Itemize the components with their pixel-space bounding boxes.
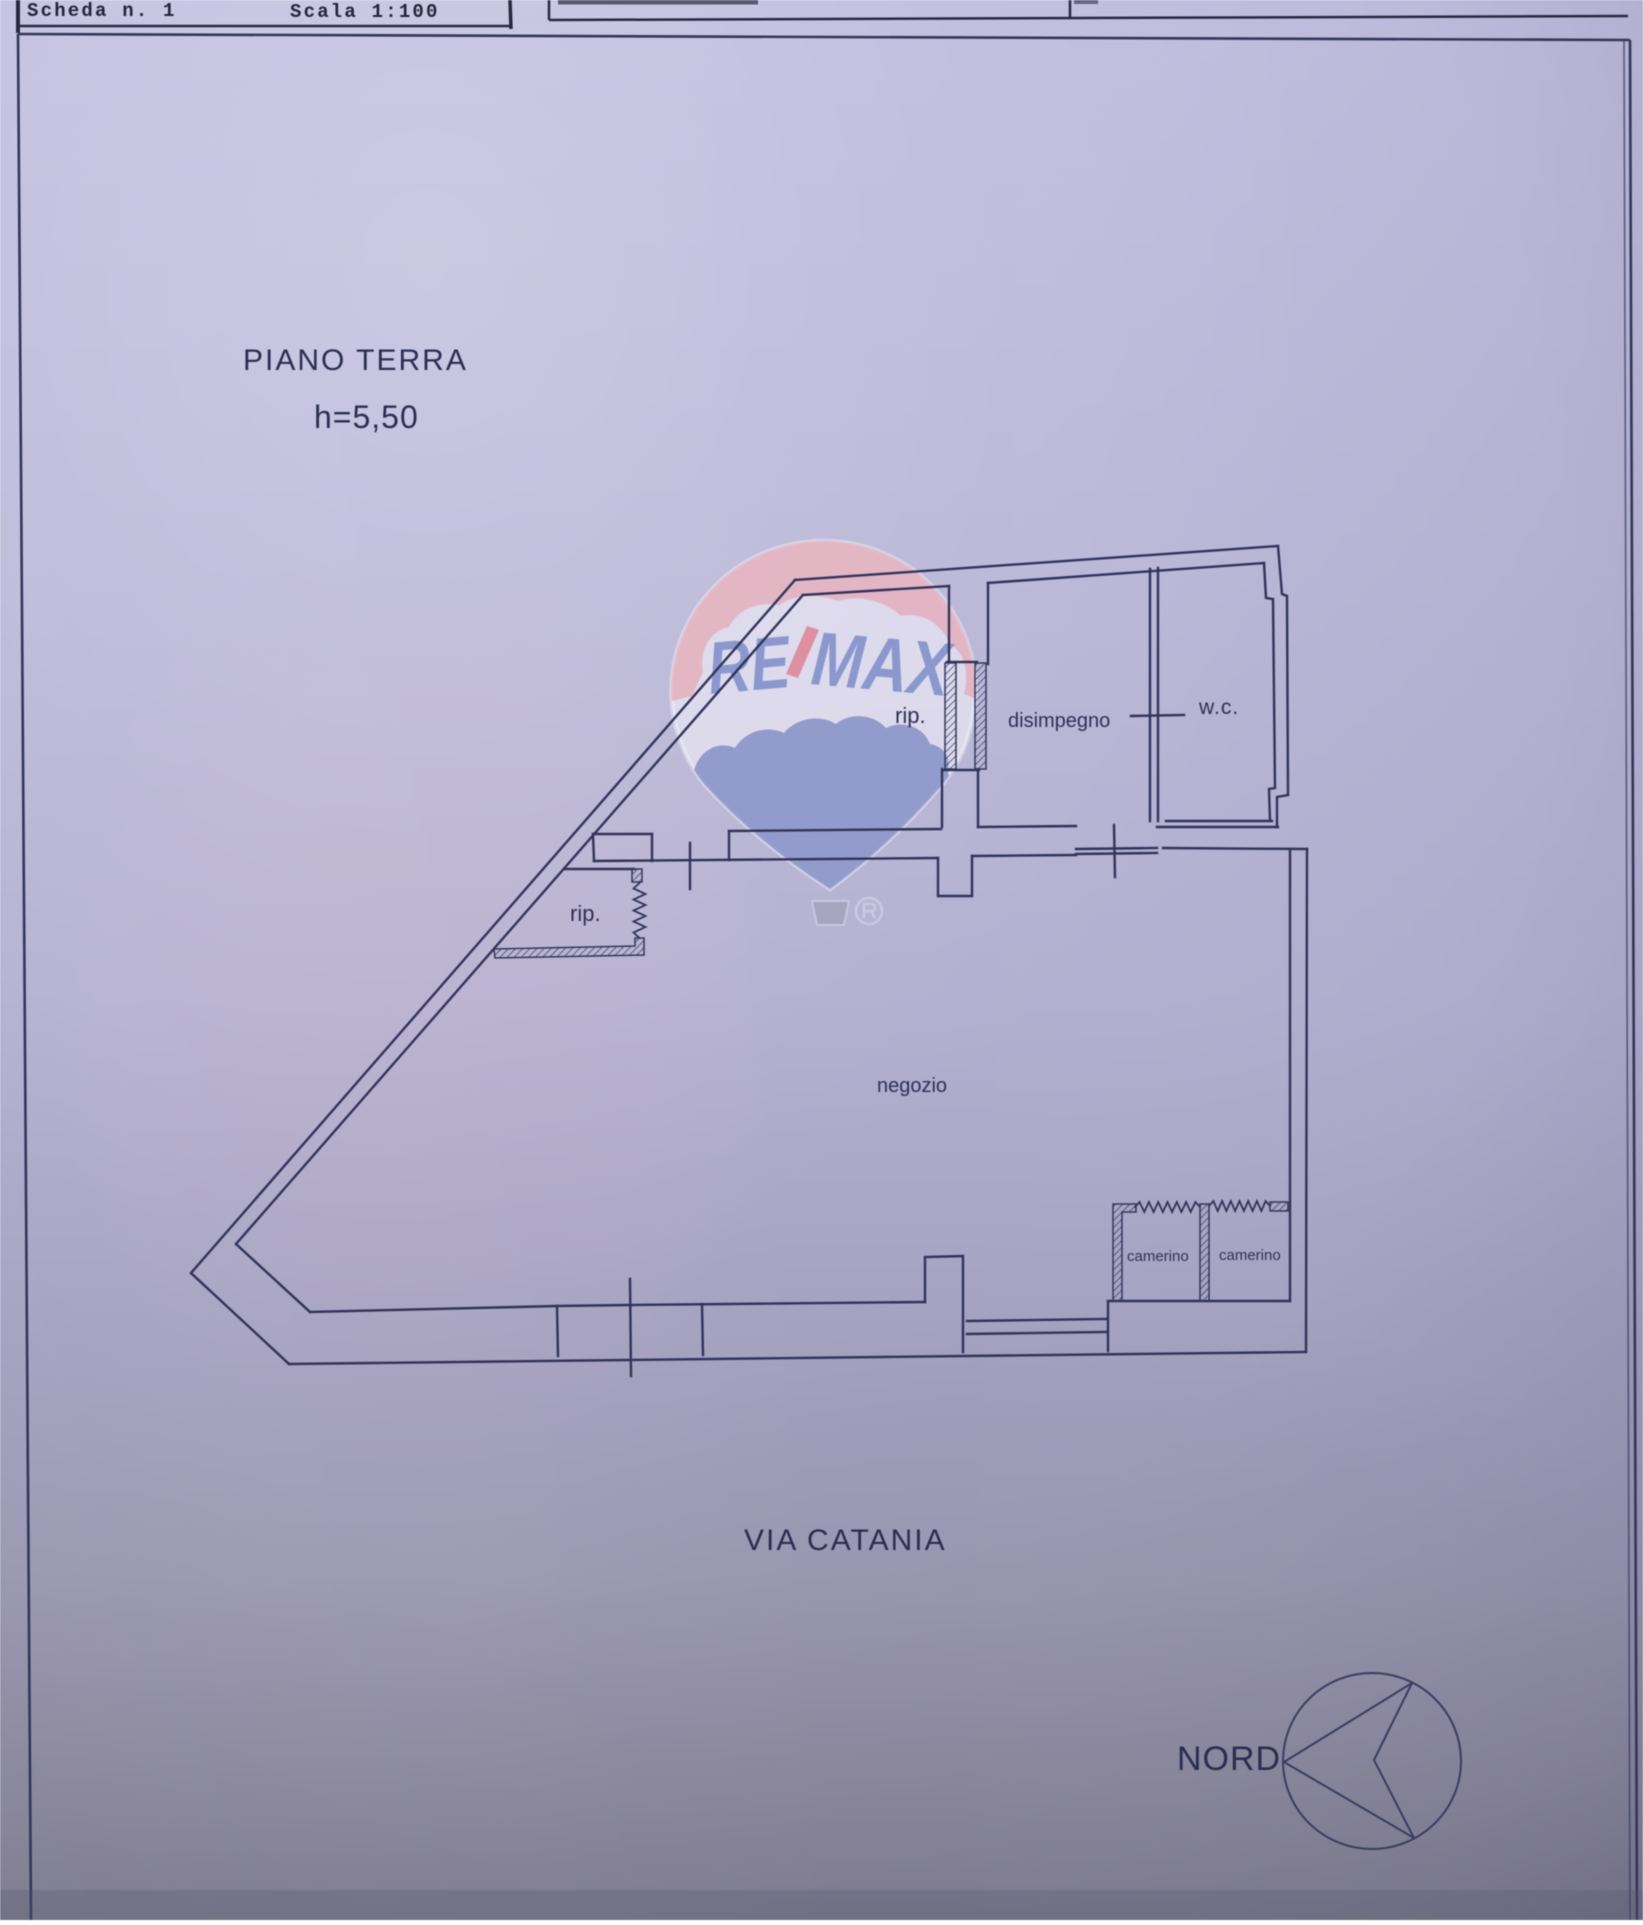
svg-text:PIANO TERRA: PIANO TERRA xyxy=(243,344,468,377)
svg-text:MAX: MAX xyxy=(809,616,957,713)
svg-text:negozio: negozio xyxy=(877,1075,947,1097)
svg-text:Scheda n. 1: Scheda n. 1 xyxy=(27,0,177,22)
svg-text:h=5,50: h=5,50 xyxy=(314,399,419,435)
svg-text:w.c.: w.c. xyxy=(1198,696,1239,719)
svg-text:NORD: NORD xyxy=(1177,1740,1281,1778)
svg-text:Scala 1:100: Scala 1:100 xyxy=(290,1,440,23)
svg-text:camerino: camerino xyxy=(1219,1247,1281,1264)
svg-text:VIA CATANIA: VIA CATANIA xyxy=(744,1524,947,1557)
svg-text:rip.: rip. xyxy=(895,703,926,728)
svg-text:rip.: rip. xyxy=(570,901,601,926)
svg-text:disimpegno: disimpegno xyxy=(1008,710,1110,732)
svg-text:camerino: camerino xyxy=(1127,1248,1189,1265)
